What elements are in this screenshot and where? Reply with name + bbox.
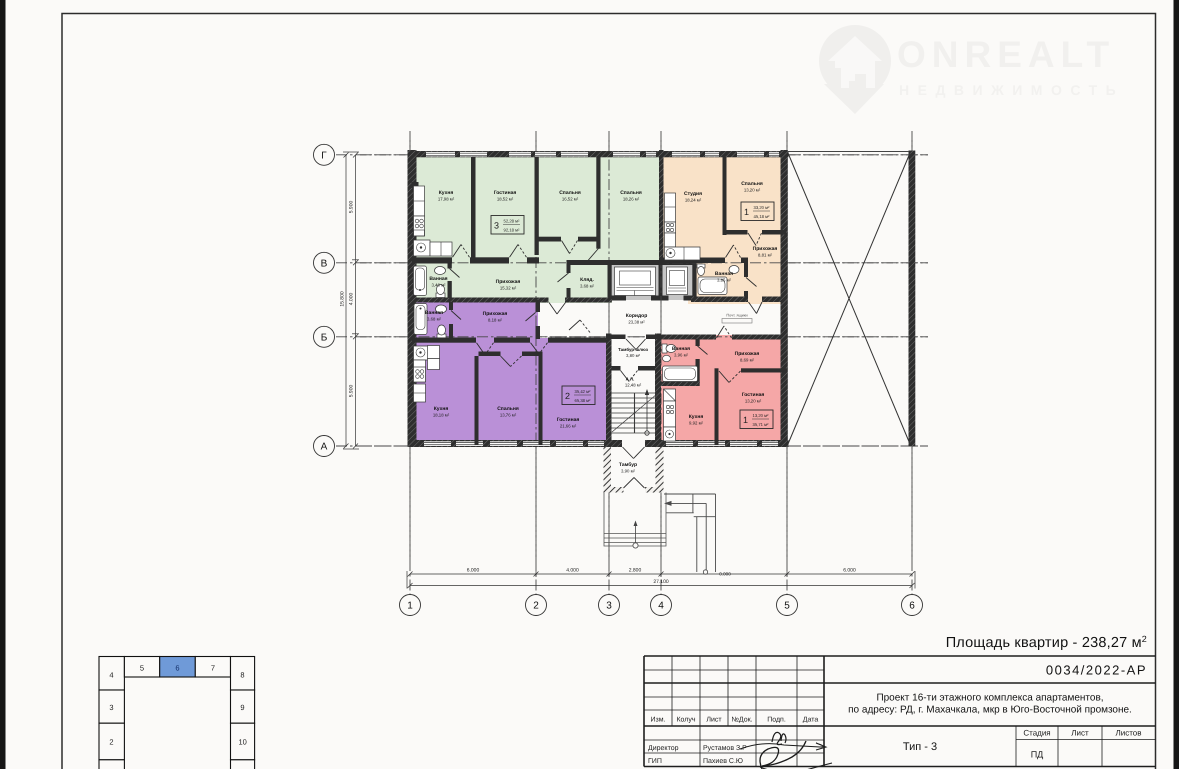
svg-text:Пахиев С.Ю: Пахиев С.Ю	[703, 758, 743, 765]
svg-text:Спальня: Спальня	[741, 181, 763, 187]
svg-text:Кухня: Кухня	[689, 414, 704, 420]
svg-text:4.000: 4.000	[349, 293, 355, 306]
svg-text:2: 2	[565, 391, 570, 401]
svg-text:21,66 м²: 21,66 м²	[560, 424, 577, 429]
svg-text:35,42 м²: 35,42 м²	[575, 389, 592, 394]
svg-text:Студия: Студия	[684, 191, 702, 197]
svg-text:17,98 м²: 17,98 м²	[438, 197, 455, 202]
svg-text:1: 1	[407, 601, 413, 612]
svg-text:Стадия: Стадия	[1023, 729, 1050, 738]
svg-text:4: 4	[109, 671, 113, 680]
svg-text:10: 10	[239, 738, 247, 747]
svg-text:8,69 м²: 8,69 м²	[740, 358, 755, 363]
svg-text:Спальня: Спальня	[620, 190, 642, 196]
svg-text:Площадь квартир - 238,27 м2: Площадь квартир - 238,27 м2	[946, 634, 1147, 651]
svg-text:7: 7	[211, 664, 215, 673]
svg-text:18,52 м²: 18,52 м²	[497, 197, 514, 202]
svg-text:9,92 м²: 9,92 м²	[689, 421, 704, 426]
svg-text:18,24 м²: 18,24 м²	[685, 198, 702, 203]
svg-text:18,18 м²: 18,18 м²	[433, 413, 450, 418]
svg-text:23,38 м²: 23,38 м²	[628, 320, 645, 325]
svg-text:3,85 м²: 3,85 м²	[717, 278, 732, 283]
svg-text:5.900: 5.900	[349, 201, 355, 214]
svg-text:Подп.: Подп.	[767, 717, 786, 724]
svg-text:5: 5	[784, 601, 790, 612]
svg-text:Гостиная: Гостиная	[557, 417, 580, 423]
svg-text:33,20 м²: 33,20 м²	[754, 205, 771, 210]
svg-text:Кухня: Кухня	[439, 190, 454, 196]
svg-text:16,52 м²: 16,52 м²	[562, 197, 579, 202]
svg-text:Ванная: Ванная	[672, 346, 690, 352]
svg-text:№Док.: №Док.	[731, 717, 752, 724]
svg-text:65,38 м²: 65,38 м²	[575, 398, 592, 403]
svg-text:Тамбур: Тамбур	[619, 462, 637, 468]
svg-text:6.000: 6.000	[467, 568, 480, 574]
svg-text:35,71 м²: 35,71 м²	[753, 422, 770, 427]
svg-text:3,46 м²: 3,46 м²	[432, 283, 447, 288]
svg-text:0.000: 0.000	[719, 572, 731, 577]
svg-text:2: 2	[533, 601, 539, 612]
svg-text:Прихожая: Прихожая	[483, 311, 508, 317]
svg-text:Почт. ящики: Почт. ящики	[726, 314, 747, 318]
svg-text:8,18 м²: 8,18 м²	[488, 318, 503, 323]
svg-text:13,20 м²: 13,20 м²	[744, 188, 761, 193]
svg-text:6: 6	[175, 664, 179, 673]
svg-text:3: 3	[606, 601, 612, 612]
svg-text:Гостиная: Гостиная	[742, 392, 765, 398]
svg-text:3,90 м²: 3,90 м²	[621, 469, 636, 474]
svg-text:Спальня: Спальня	[497, 406, 519, 412]
svg-text:ГИП: ГИП	[648, 758, 662, 765]
svg-text:Спальня: Спальня	[559, 190, 581, 196]
svg-text:3: 3	[109, 703, 113, 712]
svg-text:3: 3	[494, 221, 499, 231]
svg-text:2.800: 2.800	[629, 568, 642, 574]
svg-text:А.Л.: А.Л.	[626, 377, 635, 382]
svg-text:Дата: Дата	[803, 717, 819, 724]
svg-text:13,76 м²: 13,76 м²	[500, 413, 517, 418]
svg-text:45,18 м²: 45,18 м²	[754, 214, 771, 219]
svg-text:Лист: Лист	[1071, 729, 1089, 738]
svg-text:Прихожая: Прихожая	[753, 246, 778, 252]
svg-text:13,20 м²: 13,20 м²	[753, 413, 770, 418]
svg-text:Проект 16-ти этажного комплекс: Проект 16-ти этажного комплекса апартаме…	[876, 693, 1103, 704]
svg-text:Гостиная: Гостиная	[494, 190, 517, 196]
svg-text:Лист: Лист	[706, 717, 722, 724]
svg-text:Директор: Директор	[648, 745, 679, 752]
svg-text:1: 1	[744, 207, 749, 217]
svg-text:3,68 м²: 3,68 м²	[580, 284, 595, 289]
svg-text:92,18 м²: 92,18 м²	[504, 228, 521, 233]
svg-text:27.100: 27.100	[653, 579, 669, 585]
svg-text:Колуч: Колуч	[676, 717, 695, 724]
svg-text:4.000: 4.000	[566, 568, 579, 574]
svg-text:Кляд.: Кляд.	[580, 277, 594, 283]
svg-text:Ванная: Ванная	[429, 276, 447, 282]
svg-text:ПД: ПД	[1031, 750, 1044, 760]
svg-text:18,26 м²: 18,26 м²	[623, 197, 640, 202]
svg-text:8: 8	[240, 671, 244, 680]
svg-text:3,68 м²: 3,68 м²	[427, 317, 442, 322]
svg-text:5.900: 5.900	[349, 385, 355, 398]
svg-text:Тип - 3: Тип - 3	[903, 741, 937, 753]
svg-text:ONREALT: ONREALT	[897, 34, 1115, 75]
svg-text:3,96 м²: 3,96 м²	[674, 353, 689, 358]
svg-text:52,28 м²: 52,28 м²	[504, 219, 521, 224]
svg-text:6: 6	[909, 601, 915, 612]
svg-text:0034/2022-АР: 0034/2022-АР	[1046, 663, 1147, 678]
svg-text:Коридор: Коридор	[626, 313, 648, 319]
svg-text:12,48 м²: 12,48 м²	[625, 383, 642, 388]
svg-text:3,80 м²: 3,80 м²	[626, 353, 641, 358]
svg-text:Г: Г	[321, 150, 327, 161]
svg-text:НЕДВИЖИМОСТЬ: НЕДВИЖИМОСТЬ	[899, 82, 1124, 98]
svg-text:Изм.: Изм.	[651, 717, 666, 724]
svg-text:Ванная: Ванная	[425, 310, 443, 316]
svg-text:А: А	[321, 442, 328, 453]
svg-text:15,32 м²: 15,32 м²	[500, 286, 517, 291]
svg-text:1: 1	[743, 415, 748, 425]
svg-text:по адресу: РД, г. Махачкала, м: по адресу: РД, г. Махачкала, мкр в Юго-В…	[848, 705, 1132, 716]
svg-text:Тамбур-шлюз: Тамбур-шлюз	[618, 347, 649, 352]
svg-text:Листов: Листов	[1116, 729, 1142, 738]
svg-text:2: 2	[109, 738, 113, 747]
svg-text:5: 5	[140, 664, 144, 673]
svg-text:8,81 м²: 8,81 м²	[758, 253, 773, 258]
svg-text:Прихожая: Прихожая	[496, 279, 521, 285]
svg-text:В: В	[321, 258, 328, 269]
svg-text:13,20 м²: 13,20 м²	[745, 399, 762, 404]
svg-text:6.000: 6.000	[843, 568, 856, 574]
svg-text:15.800: 15.800	[340, 291, 346, 307]
svg-text:9: 9	[240, 703, 244, 712]
svg-text:Ванная: Ванная	[715, 271, 733, 277]
svg-text:Б: Б	[321, 332, 328, 343]
svg-text:Прихожая: Прихожая	[735, 351, 760, 357]
svg-text:Кухня: Кухня	[434, 406, 449, 412]
svg-text:4: 4	[658, 601, 664, 612]
